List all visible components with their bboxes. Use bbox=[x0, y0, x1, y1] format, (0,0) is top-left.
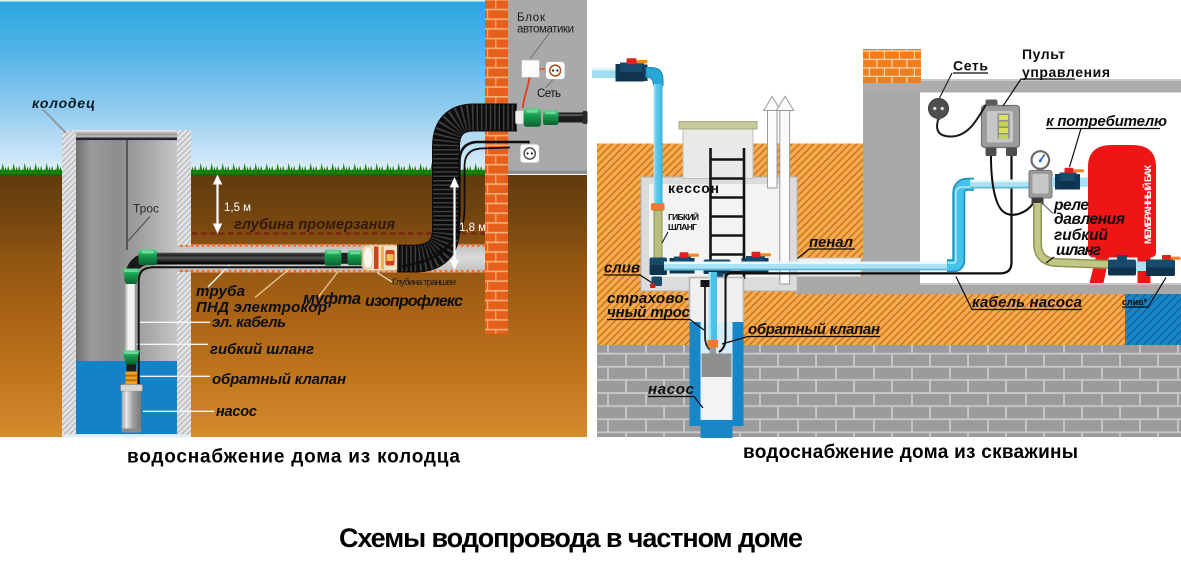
svg-text:управления: управления bbox=[1022, 64, 1110, 80]
svg-text:шланг: шланг bbox=[1056, 242, 1101, 259]
svg-text:МЕМБРАННЫЙ БАК: МЕМБРАННЫЙ БАК bbox=[1142, 165, 1154, 244]
svg-text:кессон: кессон bbox=[668, 180, 719, 196]
svg-text:давления: давления bbox=[1054, 211, 1125, 228]
svg-text:гибкий шланг: гибкий шланг bbox=[210, 341, 314, 358]
svg-text:Сеть: Сеть bbox=[953, 58, 988, 74]
svg-text:колодец: колодец bbox=[32, 95, 95, 111]
svg-text:глубина промерзания: глубина промерзания bbox=[234, 217, 395, 233]
svg-text:Трос: Трос bbox=[133, 202, 159, 216]
svg-text:Блок: Блок bbox=[517, 12, 546, 24]
svg-text:Глубина траншеи: Глубина траншеи bbox=[392, 277, 456, 288]
svg-text:чный трос: чный трос bbox=[607, 304, 691, 321]
svg-text:обратный клапан: обратный клапан bbox=[212, 371, 346, 388]
svg-text:слив*: слив* bbox=[1122, 297, 1147, 307]
svg-text:муфта: муфта bbox=[303, 290, 361, 308]
svg-text:1,5 м: 1,5 м bbox=[224, 202, 251, 214]
svg-text:1,8 м: 1,8 м bbox=[459, 222, 486, 234]
svg-text:кабель насоса: кабель насоса bbox=[972, 294, 1082, 311]
svg-text:насос: насос bbox=[648, 381, 695, 398]
svg-text:к потребителю: к потребителю bbox=[1046, 113, 1167, 130]
svg-text:насос: насос bbox=[216, 404, 257, 420]
svg-text:обратный клапан: обратный клапан bbox=[748, 321, 880, 338]
svg-text:Схемы водопровода в частном до: Схемы водопровода в частном доме bbox=[339, 523, 803, 553]
svg-text:Сеть: Сеть bbox=[537, 88, 561, 100]
svg-text:ШЛАНГ: ШЛАНГ bbox=[668, 222, 697, 232]
svg-text:слив: слив bbox=[604, 260, 640, 277]
svg-text:ГИБКИЙ: ГИБКИЙ bbox=[668, 211, 699, 222]
svg-text:водоснабжение дома из скважины: водоснабжение дома из скважины bbox=[743, 442, 1078, 463]
svg-text:труба: труба bbox=[196, 283, 245, 300]
svg-text:водоснабжение дома из колодца: водоснабжение дома из колодца bbox=[127, 447, 460, 468]
svg-text:изопрофлекс: изопрофлекс bbox=[365, 293, 463, 310]
svg-text:автоматики: автоматики bbox=[517, 24, 574, 36]
svg-text:эл. кабель: эл. кабель bbox=[212, 314, 286, 331]
svg-text:Пульт: Пульт bbox=[1022, 46, 1065, 62]
